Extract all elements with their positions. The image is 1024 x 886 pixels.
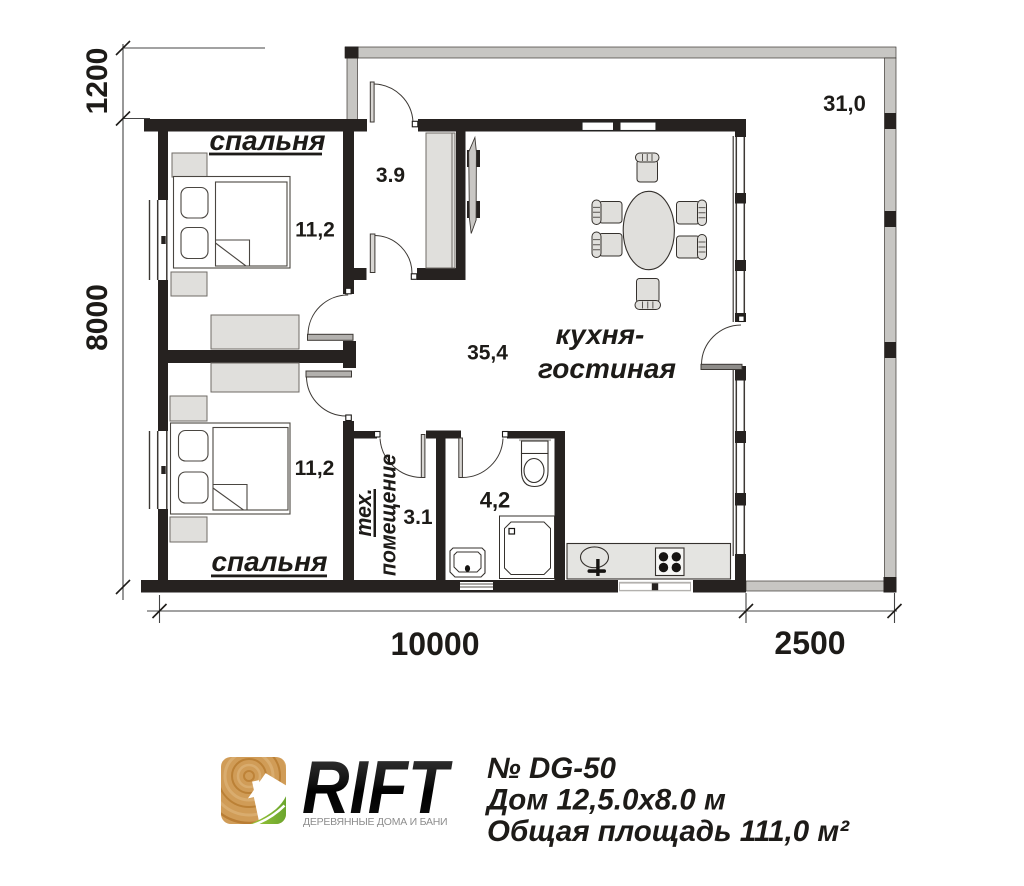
svg-text:спальня: спальня [209, 125, 325, 156]
svg-text:35,4: 35,4 [467, 342, 508, 365]
svg-text:Общая площадь 111,0 м²: Общая площадь 111,0 м² [487, 815, 850, 848]
svg-text:помещение: помещение [376, 454, 401, 576]
svg-text:ДЕРЕВЯННЫЕ ДОМА И БАНИ: ДЕРЕВЯННЫЕ ДОМА И БАНИ [303, 816, 448, 828]
svg-text:спальня: спальня [211, 546, 327, 577]
svg-text:8000: 8000 [81, 284, 114, 351]
svg-text:3.9: 3.9 [376, 164, 405, 187]
svg-text:№ DG-50: № DG-50 [487, 752, 616, 785]
svg-text:11,2: 11,2 [295, 219, 335, 242]
svg-text:гостиная: гостиная [538, 353, 676, 384]
svg-text:1200: 1200 [81, 48, 114, 115]
svg-text:11,2: 11,2 [295, 457, 335, 480]
svg-text:кухня-: кухня- [556, 319, 645, 350]
svg-text:тех.: тех. [351, 489, 376, 537]
svg-text:Дом 12,5.0х8.0 м: Дом 12,5.0х8.0 м [484, 784, 726, 817]
svg-text:4,2: 4,2 [480, 488, 511, 513]
svg-text:31,0: 31,0 [823, 91, 866, 116]
svg-text:2500: 2500 [774, 625, 845, 661]
svg-text:3.1: 3.1 [403, 506, 433, 529]
svg-text:10000: 10000 [391, 626, 480, 662]
